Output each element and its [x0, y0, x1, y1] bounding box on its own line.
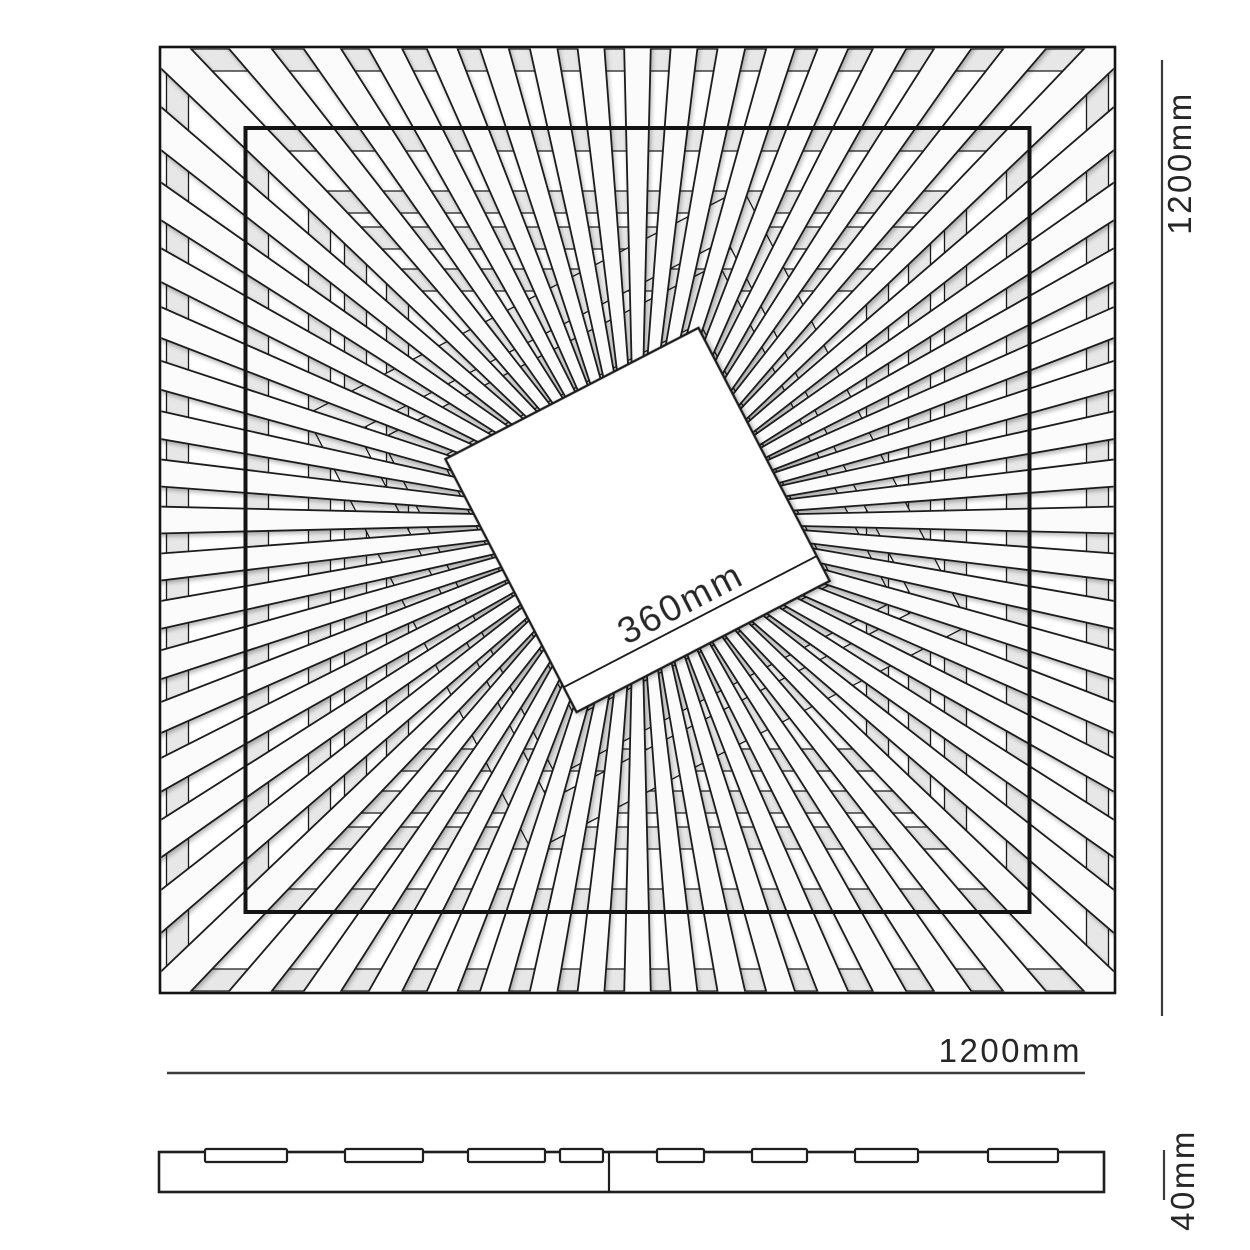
profile-tab — [855, 1149, 918, 1162]
thickness-dimension-label: 40mm — [1164, 1129, 1201, 1231]
height-dimension-label: 1200mm — [1161, 91, 1198, 234]
profile-tab — [752, 1149, 807, 1162]
diagram-canvas: 360mm1200mm1200mm40mm — [0, 0, 1250, 1250]
profile-tab — [988, 1149, 1058, 1162]
profile-tab — [657, 1149, 704, 1162]
width-dimension-label: 1200mm — [939, 1032, 1082, 1069]
profile-tab — [560, 1149, 603, 1162]
profile-tab — [345, 1149, 423, 1162]
side-profile-view — [159, 1149, 1104, 1192]
profile-tab — [468, 1149, 545, 1162]
profile-body — [159, 1152, 1104, 1192]
profile-tab — [205, 1149, 287, 1162]
dimension-diagram-svg: 360mm1200mm1200mm40mm — [0, 0, 1250, 1250]
